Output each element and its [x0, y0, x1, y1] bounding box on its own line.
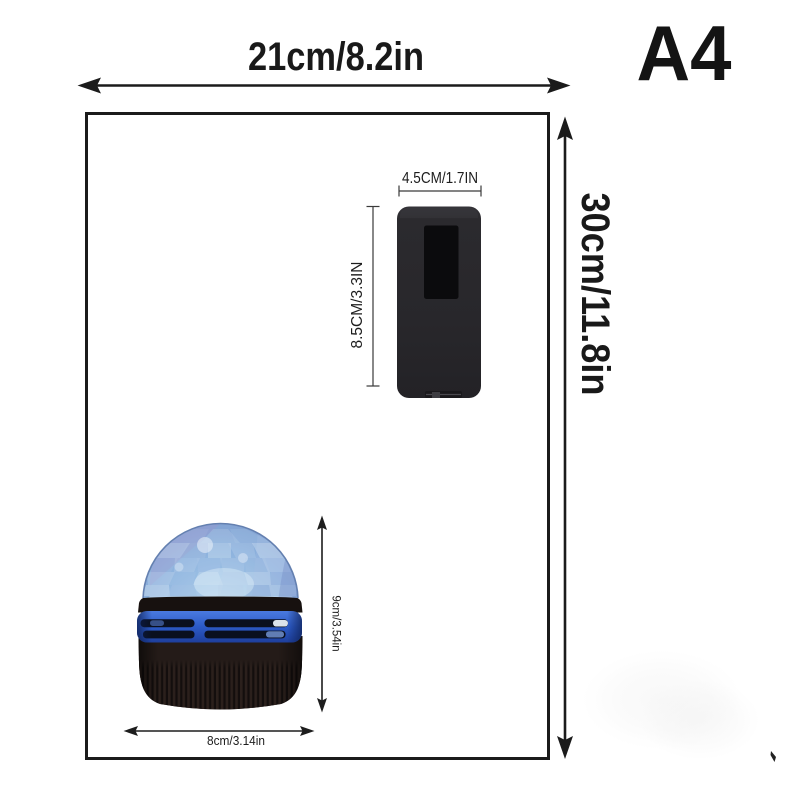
svg-text:30cm/11.8in: 30cm/11.8in: [573, 193, 617, 396]
svg-text:9cm/3.54in: 9cm/3.54in: [330, 595, 342, 651]
svg-text:A4: A4: [637, 9, 732, 97]
svg-text:8cm/3.14in: 8cm/3.14in: [207, 733, 265, 748]
svg-text:4.5CM/1.7IN: 4.5CM/1.7IN: [402, 170, 478, 187]
svg-text:21cm/8.2in: 21cm/8.2in: [248, 35, 424, 79]
svg-text:8.5CM/3.3IN: 8.5CM/3.3IN: [349, 262, 366, 349]
